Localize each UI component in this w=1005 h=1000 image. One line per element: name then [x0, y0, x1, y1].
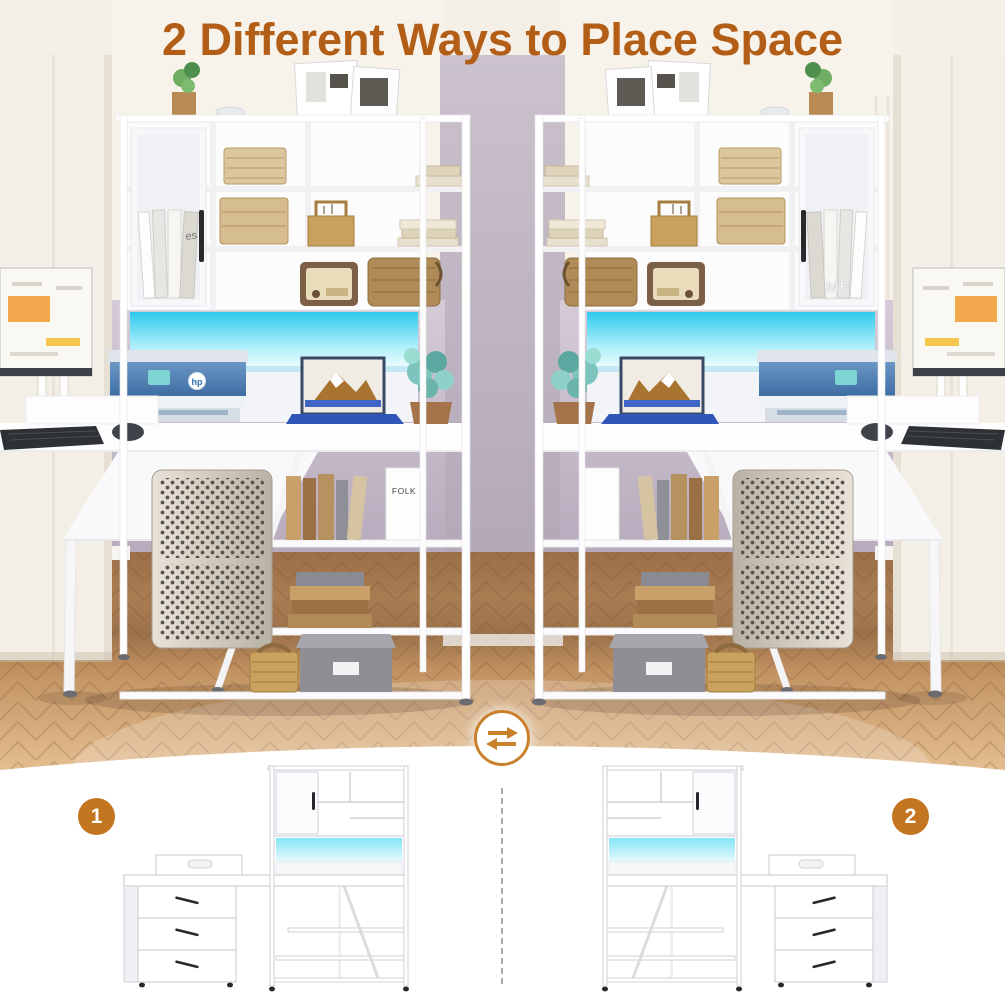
desk-riser	[26, 396, 158, 424]
hutch-shelves	[127, 122, 462, 310]
render-option-1-drawers-left	[124, 766, 409, 991]
printer-logo-text: hp	[192, 377, 203, 387]
layout-renders	[0, 752, 1005, 1000]
door-handle	[199, 210, 204, 262]
woven-speaker	[368, 258, 441, 306]
magazine-masthead-text: es	[185, 229, 199, 243]
magazine-cover-text: FOLK	[392, 486, 416, 496]
side-monitor	[0, 268, 92, 376]
mouse	[112, 423, 144, 441]
swap-arrows-icon	[485, 725, 519, 751]
pc-tower	[152, 470, 272, 648]
render-option-2-drawers-right	[602, 766, 887, 991]
room-photo: es FOLK hp ME	[0, 0, 1005, 778]
wicker-basket-floor	[250, 645, 298, 692]
vintage-radio	[300, 262, 358, 306]
page-title: 2 Different Ways to Place Space	[0, 14, 1005, 66]
center-baseboard	[443, 634, 563, 646]
glass-door-cabinet	[131, 128, 206, 306]
product-image: es FOLK hp ME 2 Different Ways to Place …	[0, 0, 1005, 1000]
shelf-letters-decor: ME	[826, 279, 851, 296]
picture-frames	[295, 60, 400, 119]
storage-box	[296, 634, 396, 692]
